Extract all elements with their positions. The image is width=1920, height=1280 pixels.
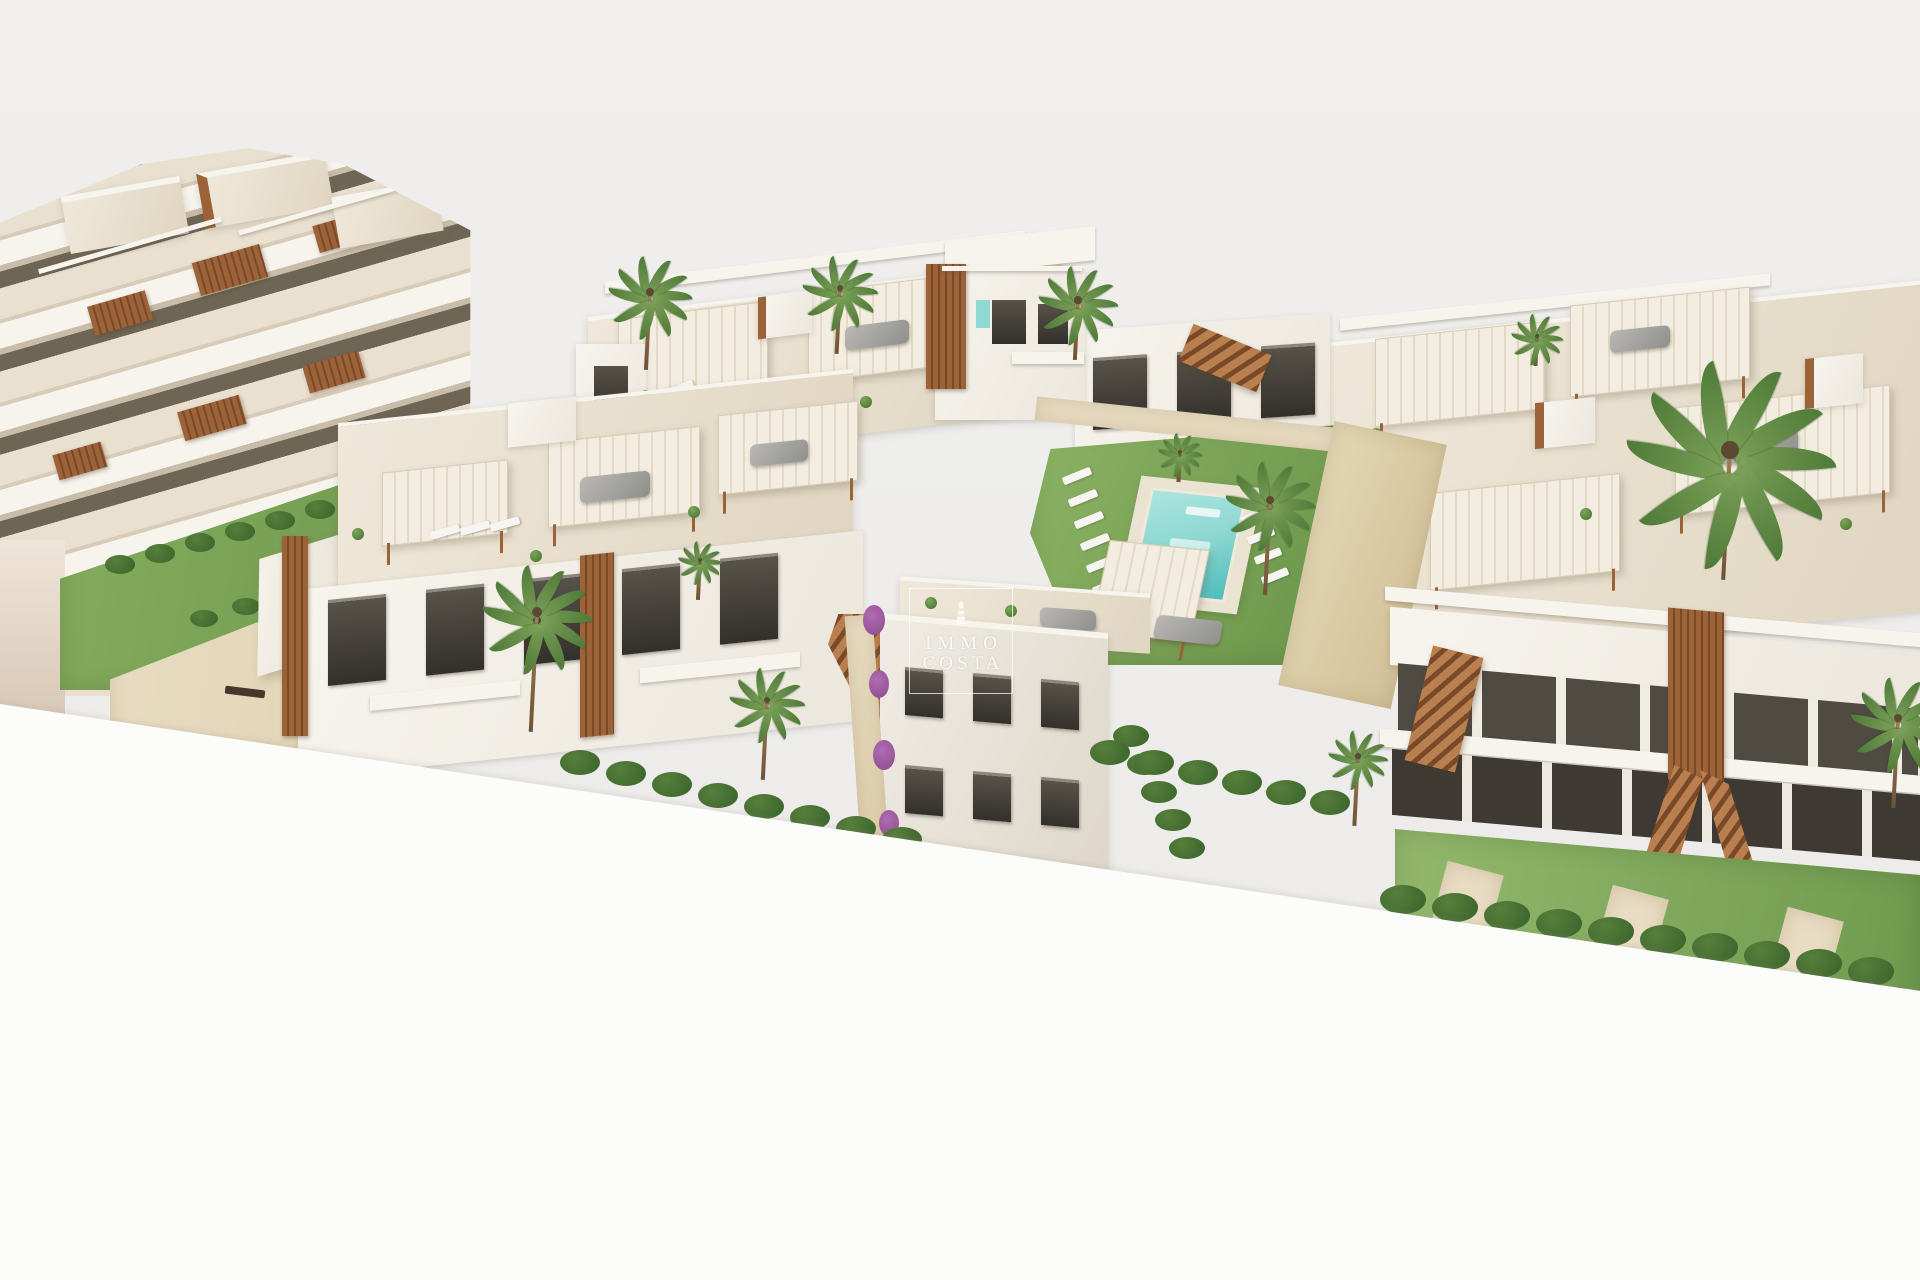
window [1041, 679, 1079, 730]
bougainvillea [863, 605, 885, 635]
hedge-bush [1090, 740, 1130, 765]
townhouse-row-middle [280, 378, 900, 798]
hedge-bush [1380, 885, 1426, 914]
window [992, 300, 1026, 344]
hedge-bush [1310, 790, 1350, 815]
hedge-bush [1169, 837, 1205, 859]
lighthouse-icon [953, 598, 969, 624]
hedge-bush [560, 750, 600, 775]
potted-plant [530, 550, 542, 562]
wood-slat-tower [282, 536, 308, 736]
potted-plant [688, 506, 700, 518]
hedge-bush [1588, 917, 1634, 946]
watermark: IMMO COSTA [909, 588, 1013, 694]
bougainvillea [869, 670, 889, 698]
palm-crown [698, 558, 702, 562]
glass-teal-accent [976, 300, 990, 328]
hedge-bush [652, 772, 692, 797]
potted-plant [1580, 508, 1592, 520]
stair-bulkhead [508, 396, 576, 447]
hedge-bush [145, 544, 175, 563]
palm-crown [646, 288, 654, 296]
palm-crown [532, 607, 542, 617]
side-wall-left [0, 540, 65, 715]
potted-plant [352, 528, 364, 540]
hedge-bush [1222, 770, 1262, 795]
bougainvillea [873, 740, 895, 770]
watermark-line1: IMMO [909, 634, 1013, 653]
hedge-bush [744, 794, 784, 819]
wood-stair-tower [926, 264, 966, 389]
lighthouse-tower [955, 605, 967, 624]
window [426, 584, 484, 676]
stair-bulkhead [1535, 397, 1595, 449]
watermark-line2: COSTA [909, 654, 1013, 673]
hedge-bush [1536, 909, 1582, 938]
hedge-bush [698, 783, 738, 808]
pergola [1430, 473, 1620, 591]
hedge-bush [1432, 893, 1478, 922]
palm-crown [1178, 450, 1182, 454]
window [1041, 777, 1079, 828]
hedge-bush [1134, 750, 1174, 775]
window [905, 765, 943, 816]
hedge-bush [105, 555, 135, 574]
hedge-bush [185, 533, 215, 552]
architectural-render: IMMO COSTA [0, 0, 1920, 1280]
potted-plant [1840, 518, 1852, 530]
palm-crown [1355, 753, 1360, 758]
hedge-bush [1484, 901, 1530, 930]
hedge-bush [1266, 780, 1306, 805]
railing [942, 266, 1082, 271]
stair-bulkhead [758, 291, 812, 340]
hedge-bush [225, 522, 255, 541]
hedge-bush [606, 761, 646, 786]
stair-bulkhead [1805, 353, 1863, 409]
palm-crown [1074, 296, 1081, 303]
lighthouse-cap [958, 600, 964, 605]
window [720, 553, 778, 645]
window [328, 594, 386, 686]
hedge-bush [1141, 781, 1177, 803]
window [973, 771, 1011, 822]
palm-crown [1266, 496, 1274, 504]
hedge-bush [1178, 760, 1218, 785]
window [622, 563, 680, 655]
wood-slat-tower [1668, 608, 1724, 785]
hedge-bush [1155, 809, 1191, 831]
